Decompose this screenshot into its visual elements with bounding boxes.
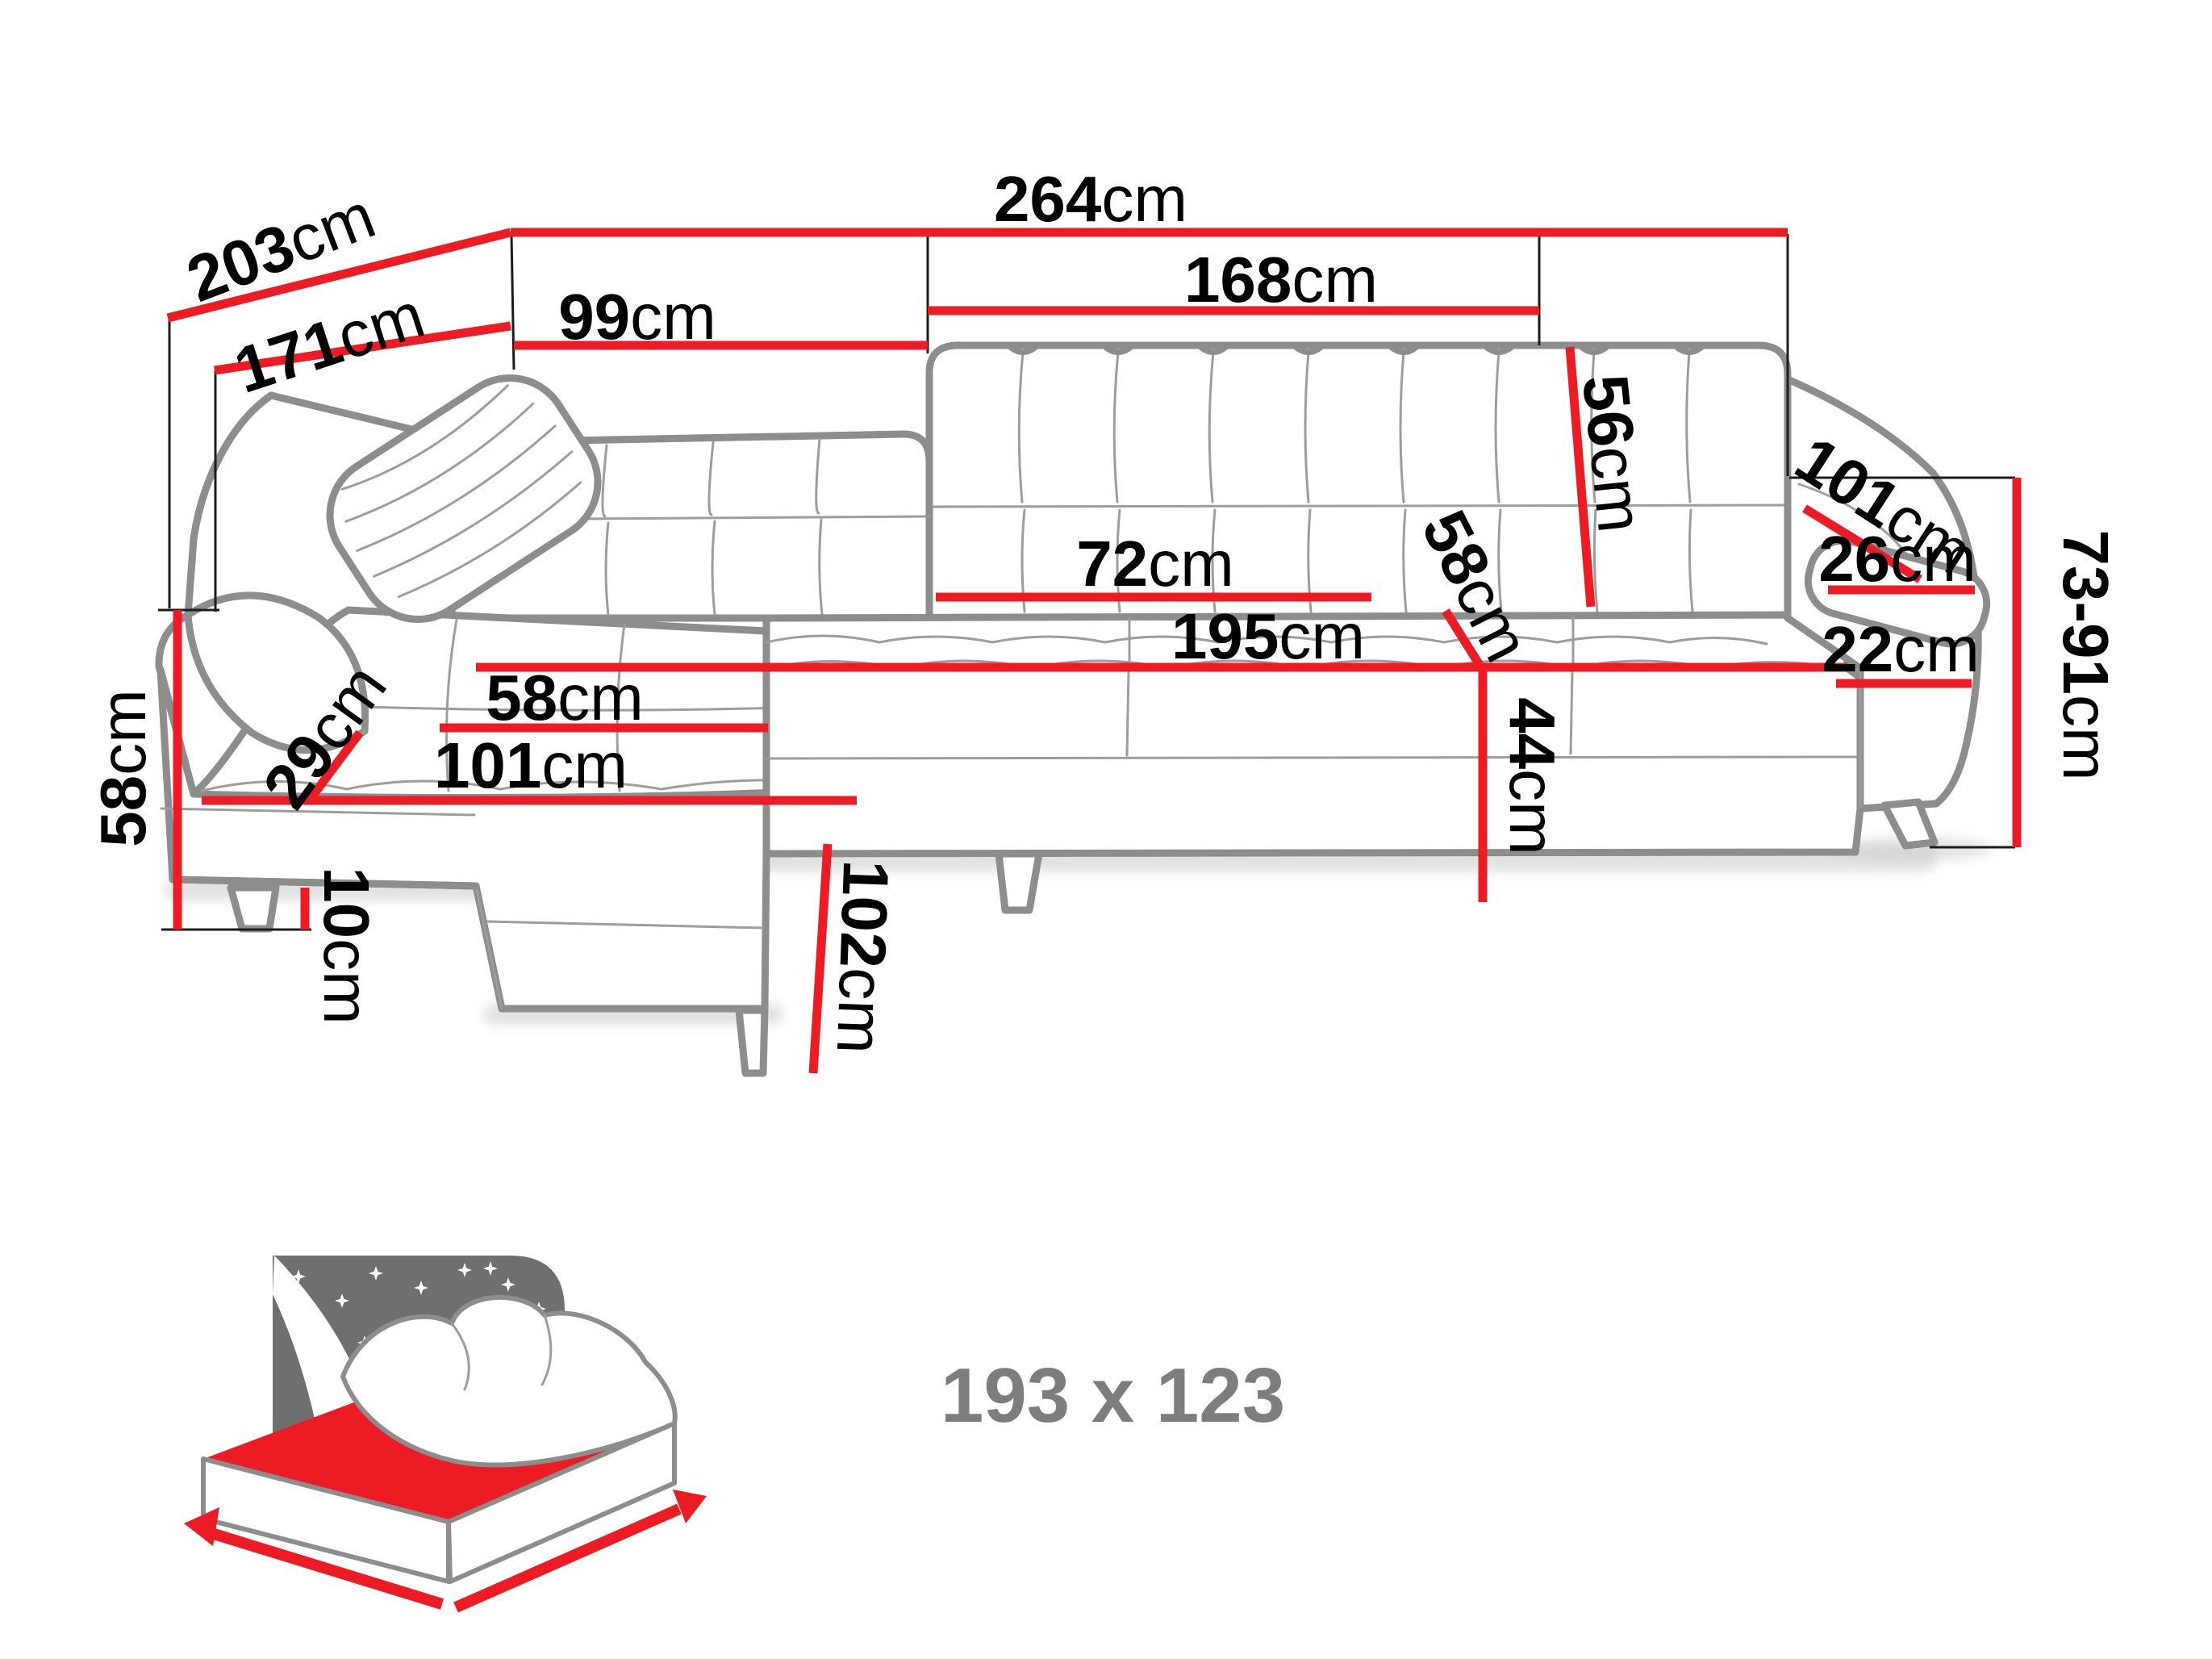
dim-label-seat-length: 195cm [1171, 600, 1365, 672]
dim-label-total-depth: 203cm [177, 178, 384, 315]
dim-label-armrest-side-depth: 22cm [1822, 613, 1980, 685]
dim-label-chaise-front-length: 102cm [824, 859, 902, 1055]
dim-label-leg-height: 10cm [311, 867, 383, 1025]
dim-label-height-range: 73-91cm [2051, 529, 2122, 780]
dim-label-chaise-length: 101cm [434, 729, 628, 801]
dim-label-side-height: 58cm [87, 689, 159, 847]
dim-label-total-width: 264cm [994, 163, 1187, 235]
backrest-right-section [929, 345, 1788, 618]
dim-label-back-section-right: 168cm [1184, 244, 1378, 316]
dim-label-seat-section-width: 72cm [1076, 528, 1234, 600]
dim-label-chaise-seat-width: 58cm [486, 662, 644, 733]
main-front-face [766, 668, 1860, 854]
dim-label-seat-height: 44cm [1497, 697, 1569, 855]
leg-chaise-front [739, 1010, 765, 1073]
sofa-dimension-diagram: 264cm 203cm 171cm 99cm 168cm 56cm 101cm … [0, 0, 2212, 1659]
leg-middle [999, 854, 1039, 910]
leg-front-left [231, 888, 276, 929]
sofa-drawing [159, 345, 1994, 1073]
sleep-function-icon: 193 x 123 [184, 1256, 1285, 1607]
dim-label-armrest-pillow-depth: 26cm [1818, 523, 1976, 595]
diagram-canvas: 264cm 203cm 171cm 99cm 168cm 56cm 101cm … [0, 0, 2212, 1659]
sleeping-area-size: 193 x 123 [941, 1352, 1285, 1439]
dim-label-back-section-left: 99cm [558, 281, 716, 353]
